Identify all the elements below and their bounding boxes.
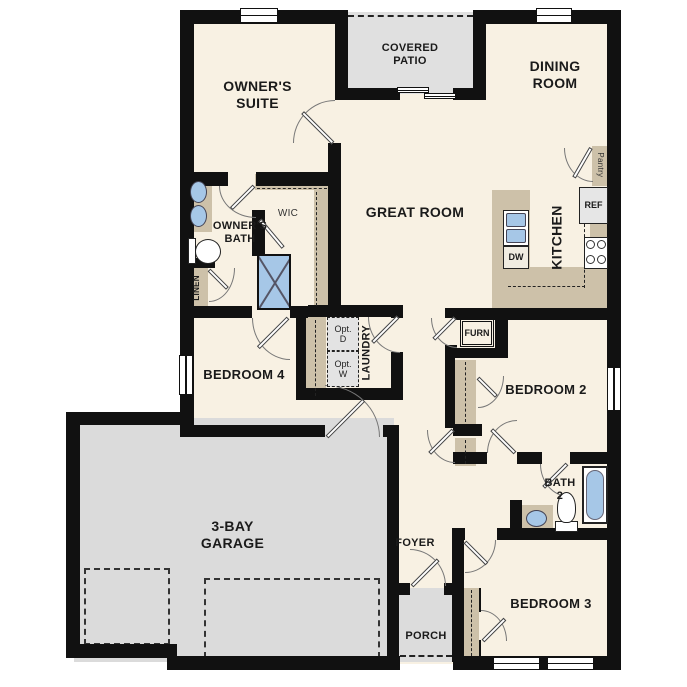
wall: [453, 452, 487, 464]
laundry-label: LAUNDRY: [360, 308, 373, 398]
wall: [328, 143, 341, 186]
pantry-label: Pantry: [595, 145, 605, 185]
bedroom3-label: BEDROOM 3: [490, 596, 612, 612]
sink: [526, 510, 547, 527]
wall: [167, 656, 400, 670]
dishwasher-label: DW: [509, 252, 524, 263]
garage-bay-outline: [84, 568, 170, 645]
closet-rod-dashed: [465, 362, 466, 422]
garage-bay-outline: [204, 578, 380, 658]
covered-patio-label: COVERED PATIO: [360, 42, 460, 69]
sliding-glass-door: [424, 93, 456, 99]
wic-shelf-dashed: [257, 188, 327, 189]
optional-dryer-label: Opt. D: [334, 324, 351, 345]
wall: [308, 305, 403, 317]
sink: [190, 181, 207, 203]
wic-shelf-dashed: [316, 192, 317, 306]
wall: [180, 425, 325, 437]
shower: [257, 254, 291, 310]
wall: [517, 452, 542, 464]
wic-label: WIC: [270, 208, 306, 220]
stove-burner: [597, 255, 606, 264]
wall: [570, 452, 621, 464]
closet-rod-dashed: [465, 440, 466, 464]
bathtub: [582, 466, 608, 524]
window: [536, 8, 572, 23]
wall: [453, 88, 486, 100]
wall: [445, 348, 508, 358]
window: [607, 367, 621, 411]
porch-label: PORCH: [396, 630, 456, 643]
wall: [335, 88, 400, 100]
wall: [452, 528, 465, 540]
wall: [399, 583, 410, 595]
wall: [445, 308, 457, 318]
bedroom4-closet: [306, 317, 326, 398]
bathtub-basin: [586, 470, 604, 520]
stove-burner: [586, 255, 595, 264]
closet-rod-dashed: [471, 590, 472, 656]
furnace-label: FURN: [465, 328, 490, 339]
wall: [66, 644, 177, 658]
wall: [473, 10, 486, 100]
foyer-label: FOYER: [385, 537, 445, 550]
garage-label: 3-BAY GARAGE: [160, 518, 305, 552]
window: [547, 657, 594, 670]
wall: [479, 588, 481, 612]
great-room-label: GREAT ROOM: [355, 204, 475, 221]
kitchen-sink-basin: [506, 229, 526, 243]
patio-edge-dashed: [348, 15, 473, 17]
dishwasher: DW: [503, 246, 529, 269]
closet-rod-dashed: [315, 320, 316, 396]
stove-burner: [586, 240, 595, 249]
kitchen-label: KITCHEN: [548, 180, 565, 296]
wall: [180, 306, 252, 318]
optional-dryer-box: Opt. D: [327, 317, 359, 351]
porch-floor: [394, 588, 458, 662]
optional-washer-box: Opt. W: [327, 351, 359, 387]
wall: [66, 412, 194, 425]
bedroom2-label: BEDROOM 2: [485, 382, 607, 398]
cabinet-dashed: [508, 286, 585, 287]
floor-plan: DW REF Opt. D Opt. W FURN OWNER'S SUITE …: [0, 0, 687, 687]
owners-suite-label: OWNER'S SUITE: [195, 78, 320, 112]
wall: [335, 10, 348, 100]
window: [240, 8, 278, 23]
refrigerator-label: REF: [585, 200, 603, 211]
furnace: FURN: [460, 319, 494, 347]
bath2-label: BATH 2: [538, 477, 582, 504]
dining-room-label: DINING ROOM: [505, 58, 605, 92]
linen-label: LINEN: [192, 266, 202, 310]
window: [493, 657, 540, 670]
kitchen-sink-basin: [506, 213, 526, 227]
wall: [66, 412, 80, 658]
wall: [607, 10, 621, 670]
wall: [296, 306, 306, 400]
optional-washer-label: Opt. W: [334, 359, 351, 380]
stove-burner: [597, 240, 606, 249]
bedroom4-label: BEDROOM 4: [185, 367, 303, 383]
wall: [453, 424, 482, 436]
owners-bath-label: OWNER'S BATH: [205, 220, 275, 247]
porch-edge-dashed: [400, 655, 452, 657]
wall: [479, 640, 481, 658]
wall: [328, 186, 341, 308]
wall: [445, 358, 455, 428]
refrigerator: REF: [579, 187, 608, 224]
